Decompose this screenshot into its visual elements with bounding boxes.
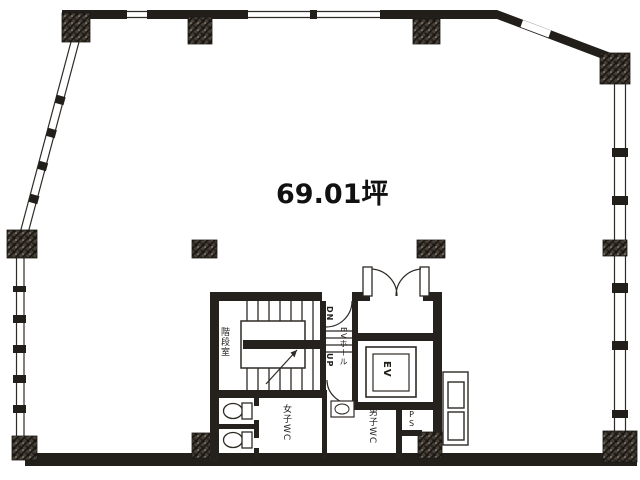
floor-plan-drawing — [0, 0, 640, 480]
side-equipment-unit — [443, 372, 468, 445]
stair-landing-edge — [243, 340, 320, 349]
stair-down-label: DN — [325, 306, 333, 321]
ev-lobby-double-door — [363, 267, 429, 296]
stair-up-label: UP — [325, 353, 333, 367]
womens-wc-label: 女子WC — [281, 404, 290, 441]
ev-hall-label: EVホール — [339, 327, 347, 367]
elevator-label: EV — [381, 361, 391, 378]
floor-plan: 69.01坪 階段室 DN UP EVホール EV 女子WC 男子WC PS — [0, 0, 640, 480]
mens-wc-label: 男子WC — [367, 407, 376, 444]
stairs — [241, 301, 352, 390]
floor-area-label: 69.01坪 — [276, 172, 416, 211]
pipe-space-label: PS — [407, 410, 415, 428]
stairwell-label: 階段室 — [219, 327, 228, 357]
wash-basin — [331, 401, 354, 417]
outer-walls — [25, 10, 637, 466]
wc-corridor-door-arc — [327, 380, 352, 404]
